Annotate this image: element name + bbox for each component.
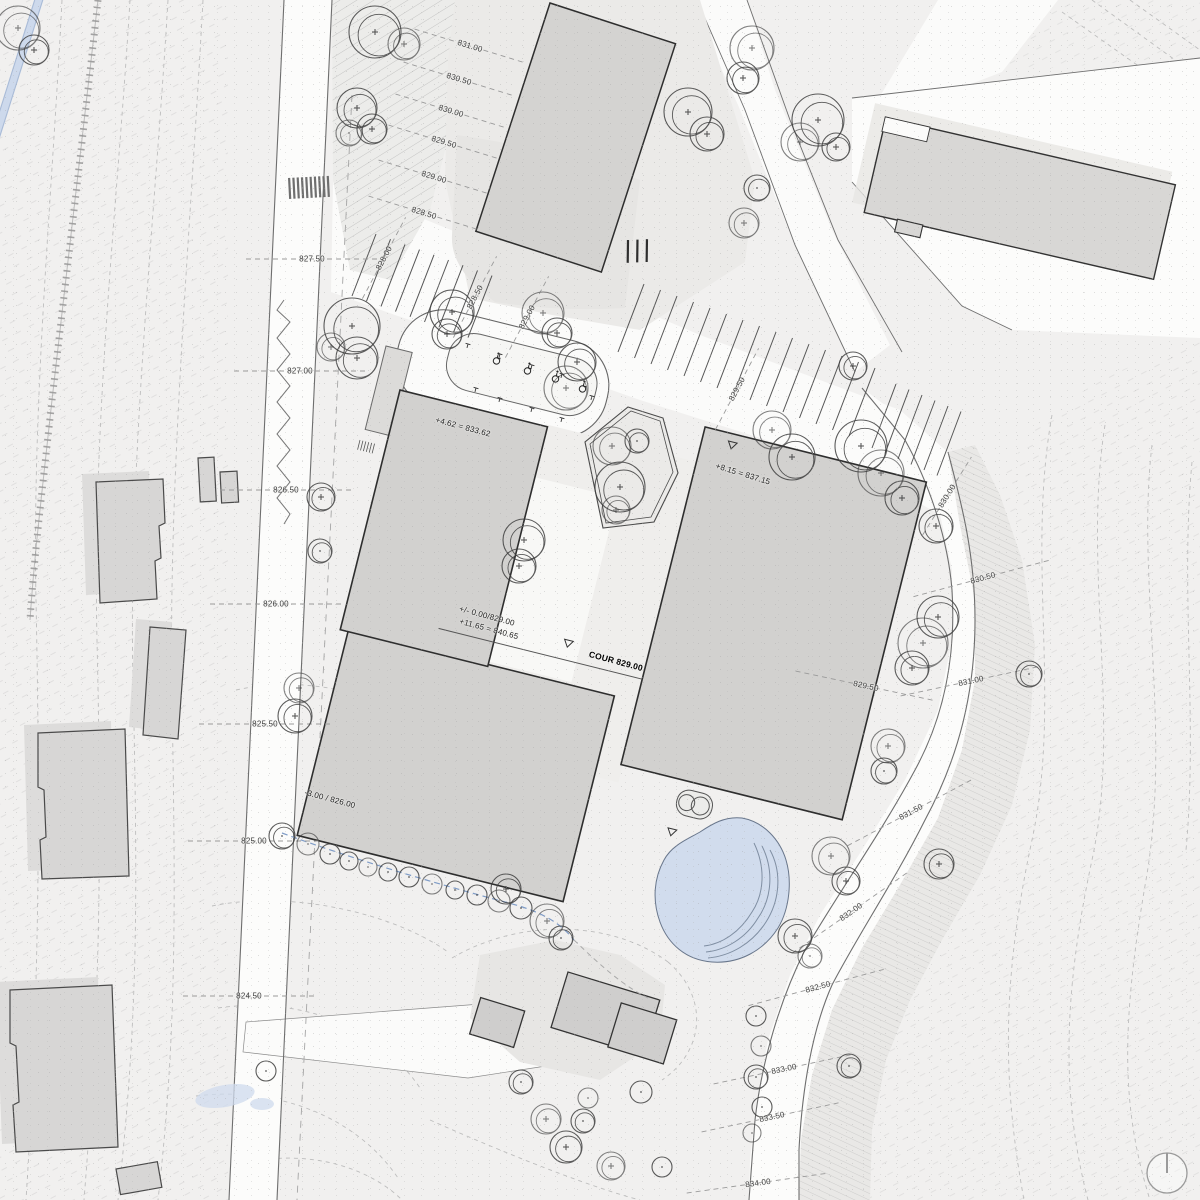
- existing-building: [10, 985, 118, 1152]
- existing-outbuilding: [198, 457, 216, 502]
- existing-building: [38, 729, 129, 879]
- site-plan-drawing: [0, 0, 1200, 1200]
- existing-building: [143, 627, 186, 739]
- site-plan-canvas: 827.50827.00826.50826.00825.50825.00824.…: [0, 0, 1200, 1200]
- existing-building: [96, 479, 165, 603]
- existing-outbuilding: [220, 471, 239, 503]
- north-marker-icon: [1147, 1153, 1187, 1193]
